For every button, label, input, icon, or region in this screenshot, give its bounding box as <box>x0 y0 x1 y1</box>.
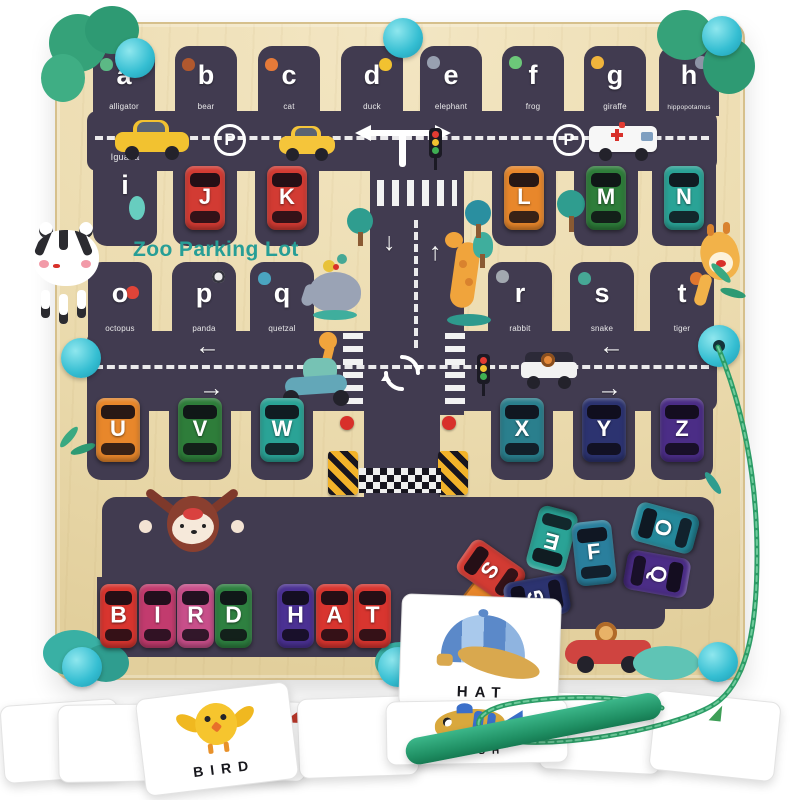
leaf-decoration <box>702 470 723 496</box>
letter-car-K[interactable]: K <box>267 166 307 230</box>
crosswalk <box>445 333 465 409</box>
slot-animal-name: hippopotamus <box>659 104 719 111</box>
bird-flash-card[interactable]: BIRD <box>135 681 300 797</box>
letter-car-Z[interactable]: Z <box>660 398 704 462</box>
letter-car-J[interactable]: J <box>185 166 225 230</box>
arrow-up-icon: ↑ <box>429 240 442 265</box>
car-letter: M <box>586 184 626 210</box>
car-letter: B <box>100 601 137 628</box>
parking-letter: P <box>224 130 235 150</box>
product-photo: a alligator b bear c cat d duck e elepha… <box>0 0 800 800</box>
cord-grommet <box>698 325 740 367</box>
tree-illustration <box>463 200 493 244</box>
board-title: Zoo Parking Lot <box>133 238 299 262</box>
hazard-stripe-post <box>438 451 468 495</box>
giraffe-illustration <box>445 230 499 330</box>
edge-peg <box>383 18 423 58</box>
car-letter: K <box>267 184 307 210</box>
letter-car-R[interactable]: R <box>177 584 214 648</box>
car-letter: X <box>500 416 544 442</box>
slot-letter: i <box>93 172 157 199</box>
car-letter: T <box>354 601 391 628</box>
slot-letter: s <box>570 280 634 307</box>
slot-letter: c <box>258 62 320 89</box>
slot-animal-name: frog <box>502 102 564 111</box>
car-letter: J <box>185 184 225 210</box>
slot-animal-name: giraffe <box>584 102 646 111</box>
slot-letter: b <box>175 62 237 89</box>
flash-card[interactable] <box>648 690 782 783</box>
car-letter: U <box>96 416 140 442</box>
arrow-down-icon: ↓ <box>383 230 396 255</box>
car-letter: R <box>177 601 214 628</box>
arrow-left-icon: ← <box>599 334 624 359</box>
car-letter: I <box>139 601 176 628</box>
letter-car-U[interactable]: U <box>96 398 140 462</box>
letter-slot-c: c cat <box>258 46 320 116</box>
taxi-illustration <box>115 120 189 160</box>
car-letter: Z <box>660 416 704 442</box>
checkered-finish-line <box>359 468 441 493</box>
letter-car-X[interactable]: X <box>500 398 544 462</box>
letter-car-V[interactable]: V <box>178 398 222 462</box>
car-letter: Q <box>642 552 675 596</box>
parking-letter: P <box>563 130 574 150</box>
zebra-illustration <box>31 220 127 336</box>
letter-car-N[interactable]: N <box>664 166 704 230</box>
red-marker <box>442 416 456 430</box>
slot-animal-name: cat <box>258 102 320 111</box>
card-corner-mark <box>709 704 723 721</box>
bush-decoration <box>633 646 699 680</box>
car-letter: E <box>529 523 574 558</box>
arrow-left-icon: ← <box>195 334 220 359</box>
letter-slot-d: d duck <box>341 46 403 116</box>
traffic-light-icon <box>429 128 442 158</box>
car-letter: F <box>573 537 615 567</box>
slot-letter: d <box>341 62 403 89</box>
roundabout-icon <box>379 350 425 396</box>
car-letter: H <box>277 601 314 628</box>
car-letter: V <box>178 416 222 442</box>
slot-letter: p <box>172 280 236 307</box>
slot-letter: e <box>420 62 482 89</box>
letter-slot-f: f frog <box>502 46 564 116</box>
loose-tile-F[interactable]: F <box>571 519 617 587</box>
scooter-giraffe-illustration <box>253 332 369 408</box>
car-letter: N <box>664 184 704 210</box>
card-label: BIRD <box>144 752 297 786</box>
hazard-stripe-post <box>328 451 358 495</box>
letter-car-A[interactable]: A <box>316 584 353 648</box>
tree-illustration <box>555 190 587 238</box>
red-marker <box>340 416 354 430</box>
car-letter: D <box>215 601 252 628</box>
letter-car-B[interactable]: B <box>100 584 137 648</box>
parking-sign: P <box>553 124 585 156</box>
car-letter: W <box>260 416 304 442</box>
crosswalk <box>377 180 457 206</box>
chick-illustration <box>136 682 287 701</box>
slot-animal-name: bear <box>175 102 237 111</box>
edge-peg <box>61 338 101 378</box>
letter-slot-b: b bear <box>175 46 237 116</box>
yellow-car-illustration <box>279 126 335 162</box>
leaf-decoration <box>41 54 85 102</box>
corner-peg <box>115 38 155 78</box>
letter-car-I[interactable]: I <box>139 584 176 648</box>
lane-divider <box>414 220 418 348</box>
traffic-light-icon <box>477 354 490 384</box>
slot-letter: f <box>502 62 564 89</box>
letter-slot-s: s snake <box>570 262 634 338</box>
corner-peg <box>702 16 742 56</box>
corner-peg <box>698 642 738 682</box>
safari-jeep-illustration <box>521 352 579 392</box>
letter-slot-e: e elephant <box>420 46 482 116</box>
car-letter: Y <box>582 416 626 442</box>
tree-illustration <box>345 208 375 252</box>
corner-peg <box>62 647 102 687</box>
car-letter: A <box>316 601 353 628</box>
letter-slot-g: g giraffe <box>584 46 646 116</box>
letter-car-T[interactable]: T <box>354 584 391 648</box>
slot-animal-name: duck <box>341 102 403 111</box>
slot-animal-name: elephant <box>420 102 482 111</box>
letter-car-Y[interactable]: Y <box>582 398 626 462</box>
letter-car-W[interactable]: W <box>260 398 304 462</box>
hat-flash-card[interactable]: HAT <box>398 593 562 713</box>
parking-sign: P <box>214 124 246 156</box>
car-letter: L <box>504 184 544 210</box>
monkey-illustration <box>147 488 239 574</box>
slot-letter: g <box>584 62 646 89</box>
letter-slot-p: p panda <box>172 262 236 338</box>
letter-car-L[interactable]: L <box>504 166 544 230</box>
ambulance-illustration <box>589 120 659 162</box>
iguana-icon <box>129 196 145 220</box>
letter-car-H[interactable]: H <box>277 584 314 648</box>
car-letter: O <box>646 505 681 550</box>
letter-car-D[interactable]: D <box>215 584 252 648</box>
slot-animal-name: alligator <box>93 102 155 111</box>
letter-car-M[interactable]: M <box>586 166 626 230</box>
elephant-illustration <box>303 266 369 326</box>
zoo-parking-board: a alligator b bear c cat d duck e elepha… <box>55 22 745 680</box>
